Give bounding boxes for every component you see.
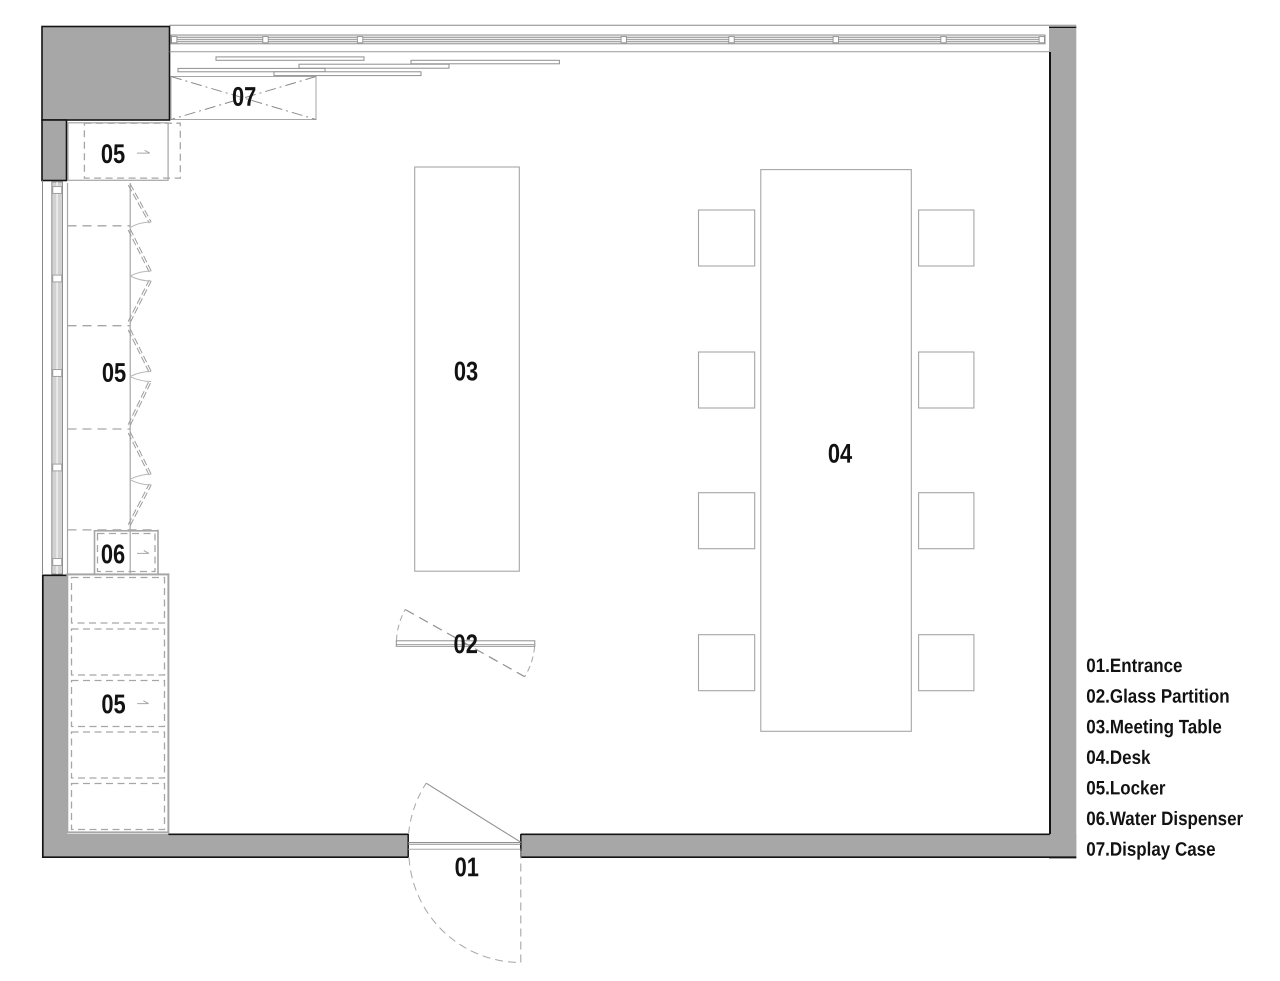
svg-text:01.Entrance: 01.Entrance bbox=[1086, 655, 1182, 676]
svg-text:02.Glass Partition: 02.Glass Partition bbox=[1086, 686, 1229, 707]
svg-text:05: 05 bbox=[101, 140, 125, 170]
svg-text:05.Locker: 05.Locker bbox=[1086, 777, 1165, 798]
svg-text:03.Meeting Table: 03.Meeting Table bbox=[1086, 716, 1221, 737]
svg-text:07: 07 bbox=[232, 83, 256, 113]
svg-text:01: 01 bbox=[455, 853, 479, 883]
svg-text:02: 02 bbox=[454, 630, 478, 660]
svg-text:06.Water Dispenser: 06.Water Dispenser bbox=[1086, 808, 1243, 829]
svg-text:04: 04 bbox=[828, 440, 853, 470]
svg-text:04.Desk: 04.Desk bbox=[1086, 747, 1151, 768]
svg-text:05: 05 bbox=[102, 359, 126, 389]
svg-text:05: 05 bbox=[101, 690, 125, 720]
svg-text:07.Display Case: 07.Display Case bbox=[1086, 839, 1215, 860]
svg-text:06: 06 bbox=[101, 540, 125, 570]
svg-text:03: 03 bbox=[454, 357, 478, 387]
